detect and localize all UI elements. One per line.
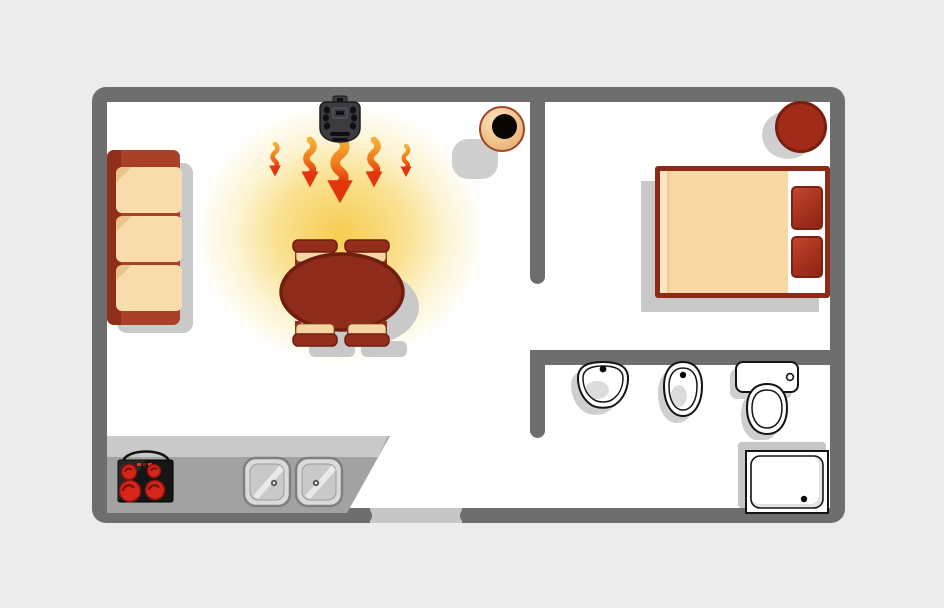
divider-wall — [530, 98, 545, 284]
heater-icon[interactable] — [316, 94, 364, 146]
heat-flames — [256, 136, 426, 212]
shower-icon[interactable] — [738, 437, 838, 521]
stove-icon[interactable] — [112, 444, 180, 508]
flame-arrow-icon — [327, 138, 353, 203]
flame-arrow-icon — [269, 144, 281, 177]
toilet-icon[interactable] — [730, 356, 806, 440]
wall-end-cap — [348, 508, 372, 523]
dining-table-set[interactable] — [265, 225, 445, 365]
bed-blanket — [660, 171, 788, 293]
chair — [345, 321, 389, 346]
sofa-cushion — [116, 265, 182, 311]
flame-arrow-icon — [400, 146, 411, 177]
washbasin-icon[interactable] — [566, 354, 640, 420]
pillow — [791, 236, 823, 278]
flame-arrow-icon — [301, 140, 318, 188]
plant-pot-opening — [492, 114, 517, 139]
sofa-cushion — [116, 216, 182, 262]
entrance-door-opening[interactable] — [370, 508, 462, 523]
stool[interactable] — [775, 101, 827, 153]
wall-end-cap — [460, 508, 484, 523]
bathroom-wall-left — [530, 350, 545, 438]
pillow — [791, 186, 823, 230]
kitchen-sink-icon[interactable] — [242, 452, 346, 510]
chair — [293, 321, 337, 346]
bidet-icon[interactable] — [652, 356, 714, 426]
floor-plan-canvas — [0, 0, 944, 608]
sofa-cushion — [116, 167, 182, 213]
flame-arrow-icon — [365, 140, 382, 188]
